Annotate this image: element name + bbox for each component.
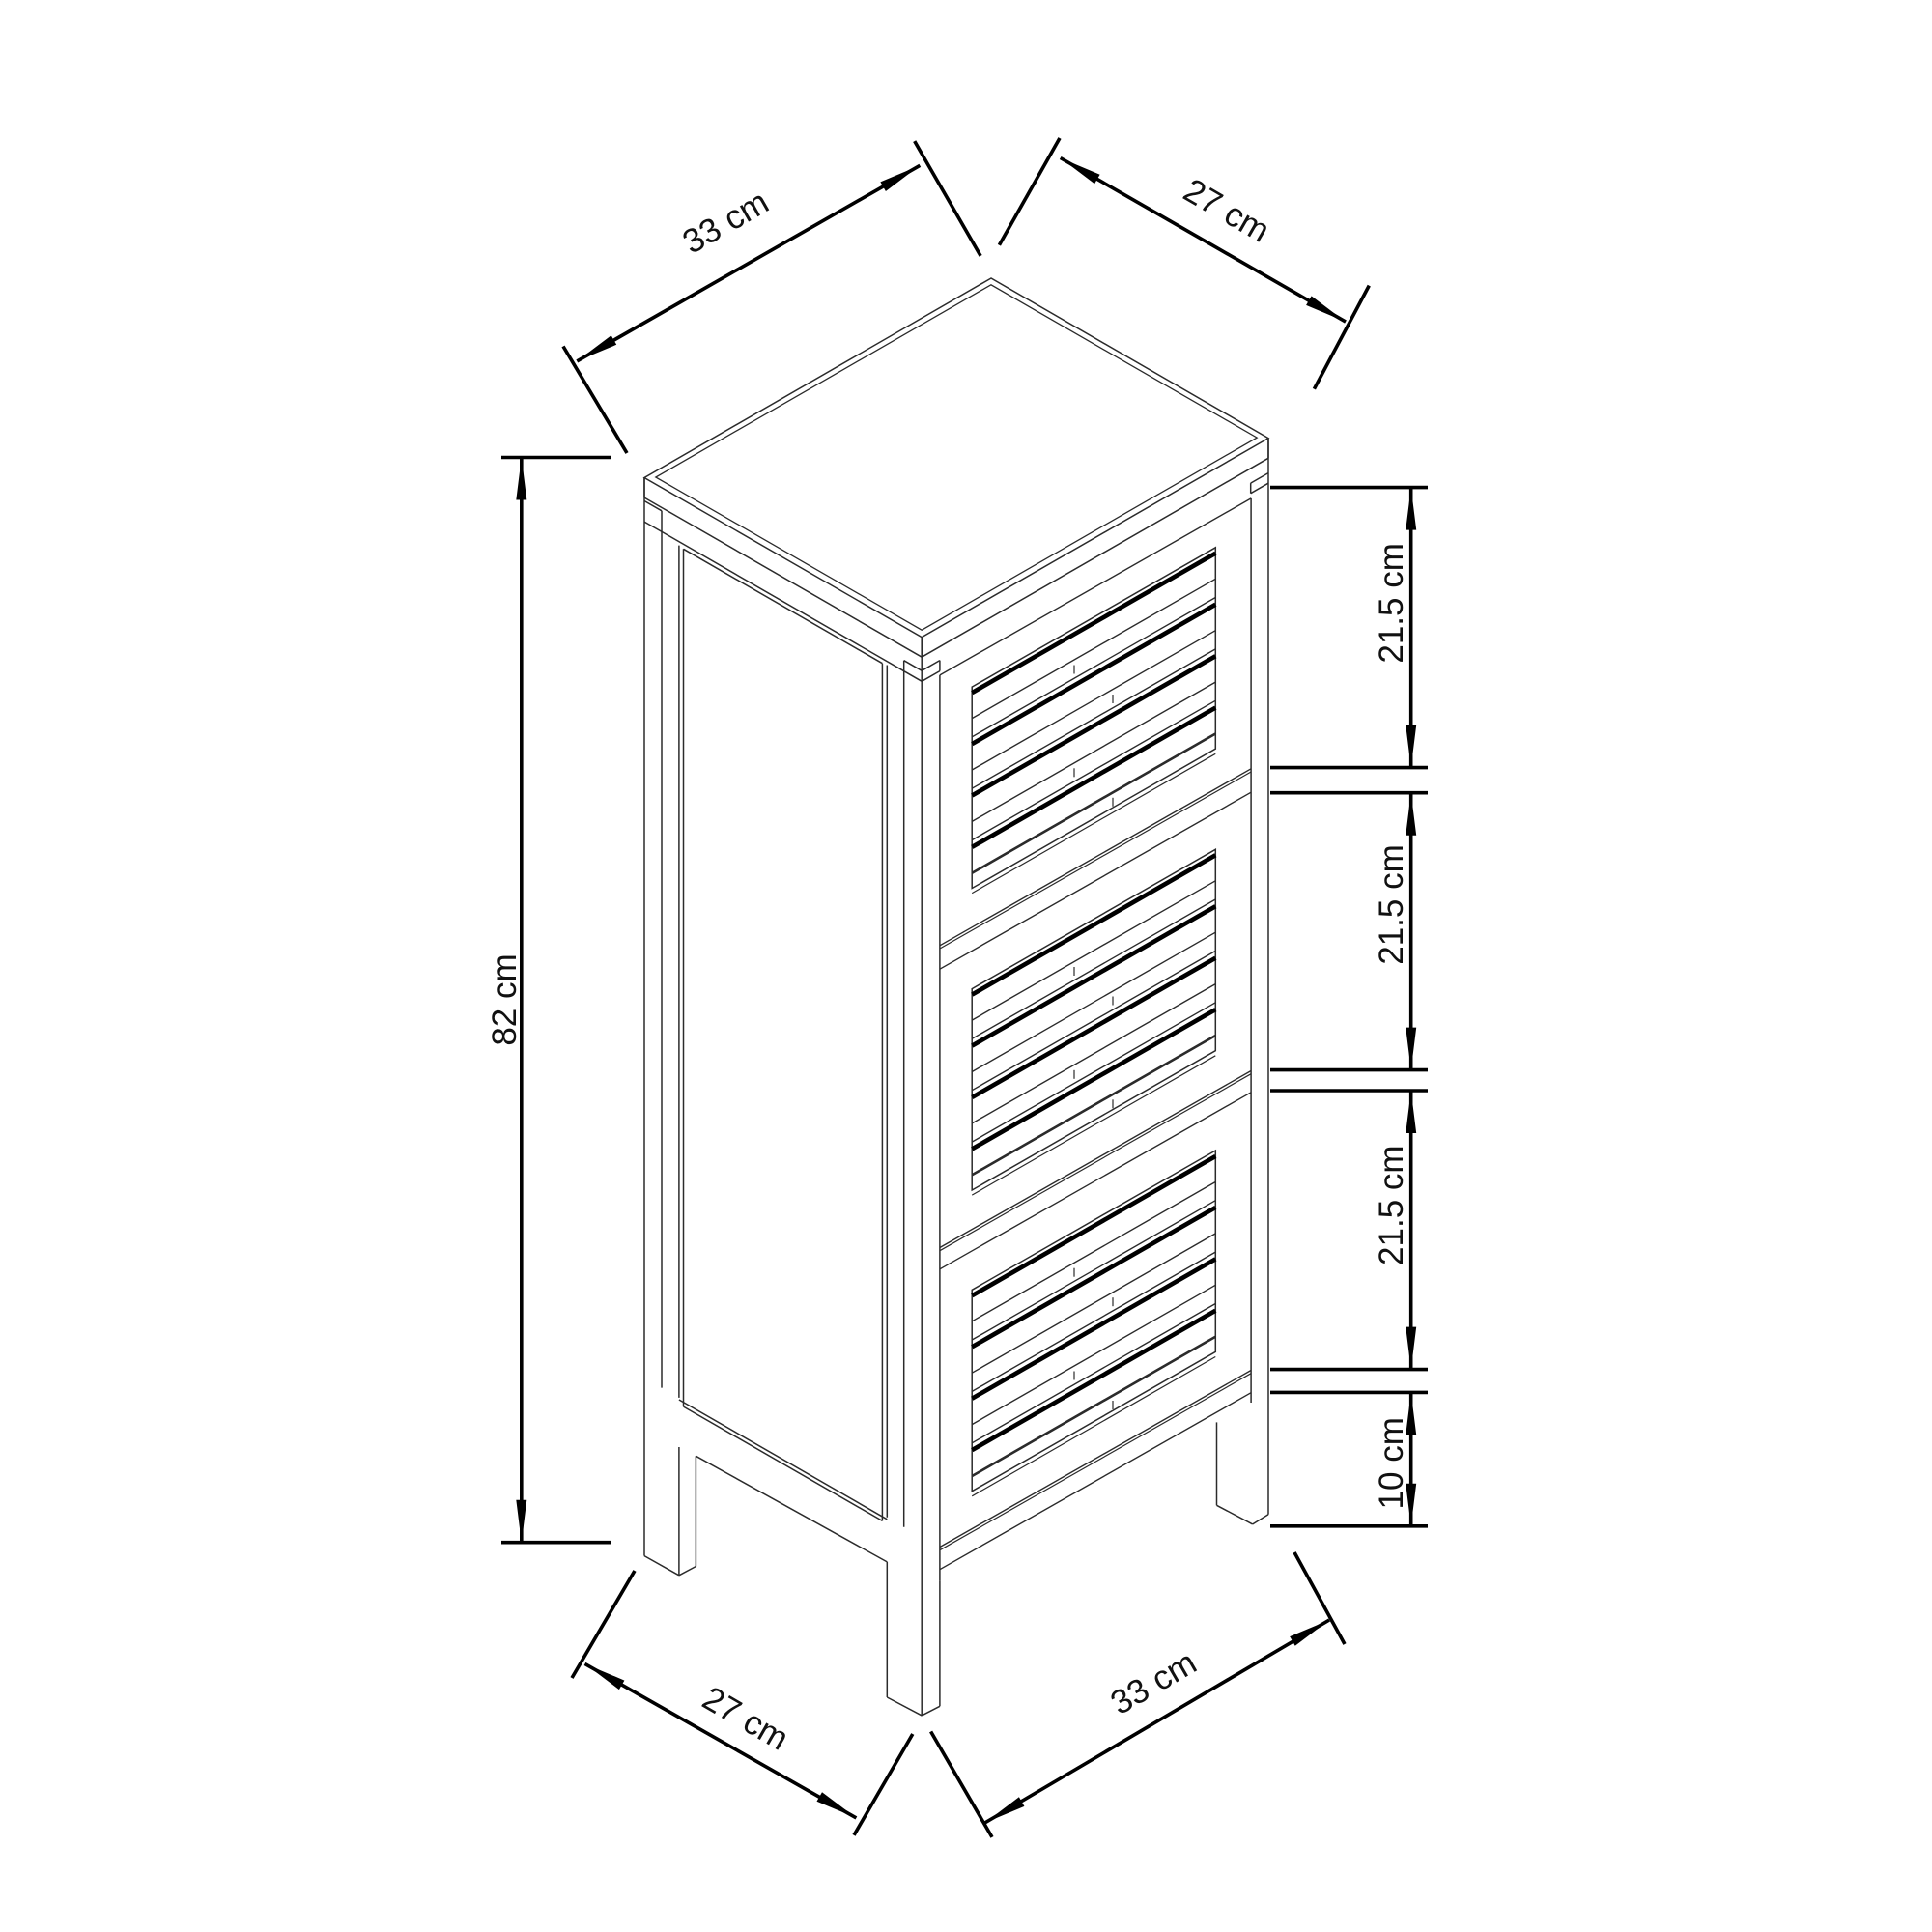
svg-text:21.5 cm: 21.5 cm	[1373, 543, 1410, 664]
svg-text:10 cm: 10 cm	[1373, 1417, 1410, 1509]
svg-text:21.5 cm: 21.5 cm	[1373, 844, 1410, 965]
svg-text:21.5 cm: 21.5 cm	[1373, 1145, 1410, 1265]
svg-text:82 cm: 82 cm	[486, 953, 524, 1045]
